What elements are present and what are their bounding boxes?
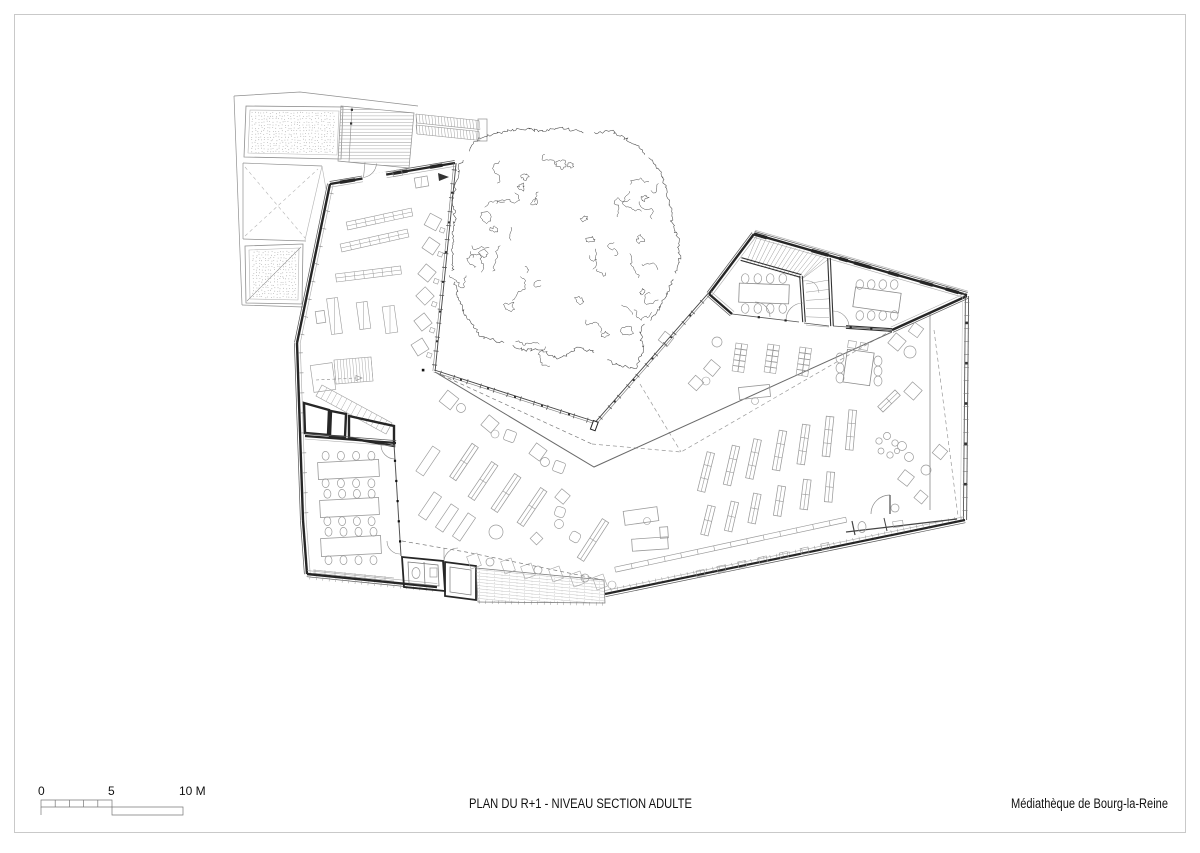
svg-text:Médiathèque de Bourg-la-Reine: Médiathèque de Bourg-la-Reine — [1011, 796, 1168, 811]
svg-text:PLAN DU R+1 - NIVEAU SECTION A: PLAN DU R+1 - NIVEAU SECTION ADULTE — [469, 796, 692, 811]
svg-text:0: 0 — [38, 784, 45, 798]
svg-text:5: 5 — [108, 784, 115, 798]
svg-text:10 M: 10 M — [179, 784, 206, 798]
